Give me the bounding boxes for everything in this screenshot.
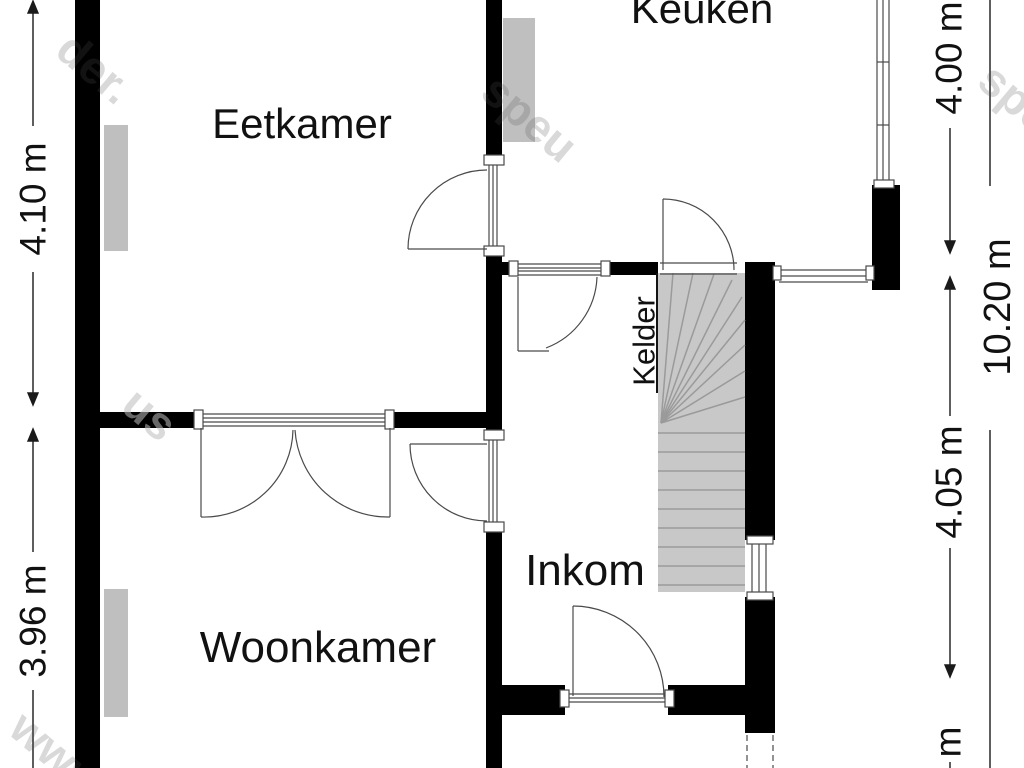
room-label-inkom: Inkom (525, 549, 645, 593)
room-label-woonkamer: Woonkamer (200, 626, 436, 670)
floor-plan: der. speu spe us www Eetkamer Keuken Woo… (0, 0, 1024, 768)
dimension-label-right-bottom: m (930, 727, 967, 758)
room-label-kelder: Kelder (629, 296, 660, 386)
room-label-keuken: Keuken (631, 0, 773, 30)
dimension-label-left-bottom: 3.96 m (15, 564, 52, 677)
dimension-label-left-top: 4.10 m (15, 142, 52, 255)
dimension-label-right-overall: 10.20 m (979, 238, 1017, 375)
room-label-eetkamer: Eetkamer (212, 103, 392, 145)
doors (201, 170, 734, 697)
stairs (658, 273, 745, 592)
dimension-label-right-middle: 4.05 m (931, 425, 968, 538)
dimension-label-right-top: 4.00 m (931, 1, 968, 114)
